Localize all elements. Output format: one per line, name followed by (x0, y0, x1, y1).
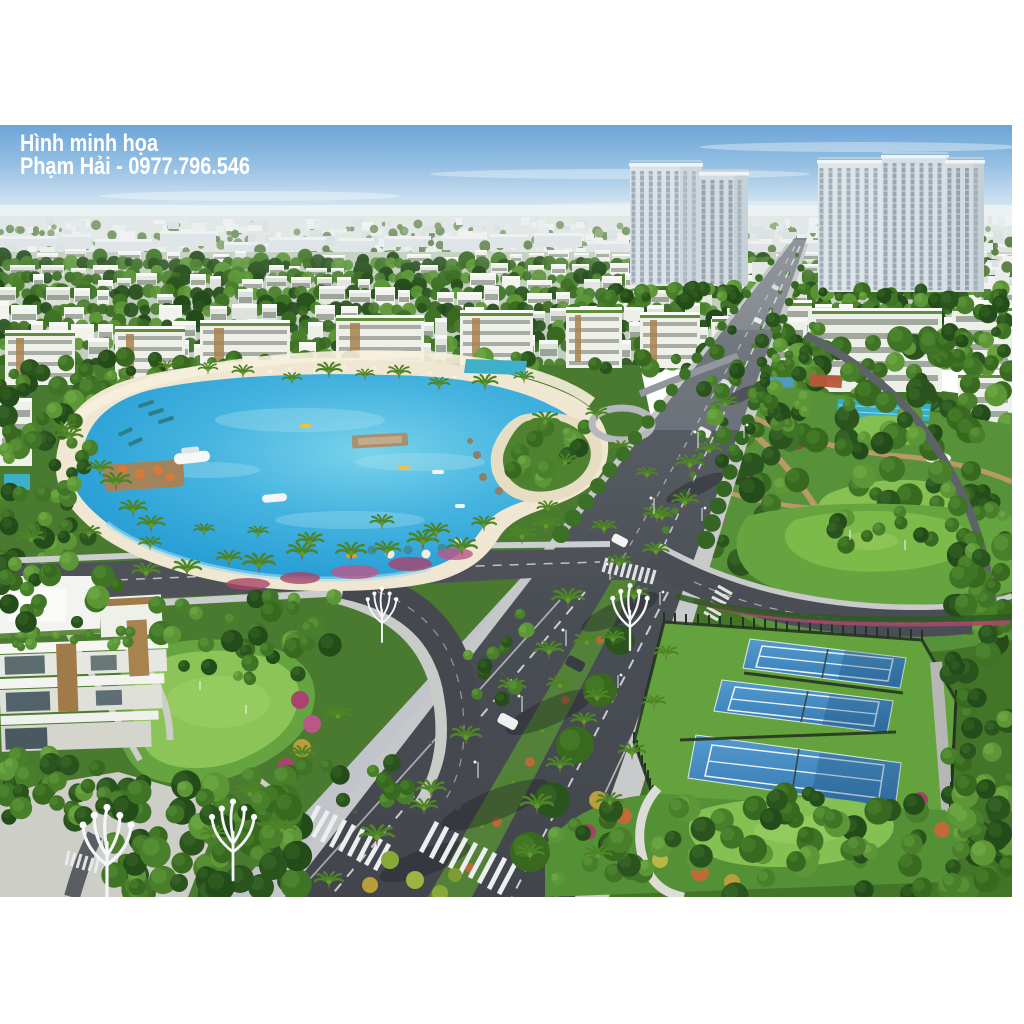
svg-text:Phạm Hải - 0977.796.546: Phạm Hải - 0977.796.546 (20, 153, 250, 180)
